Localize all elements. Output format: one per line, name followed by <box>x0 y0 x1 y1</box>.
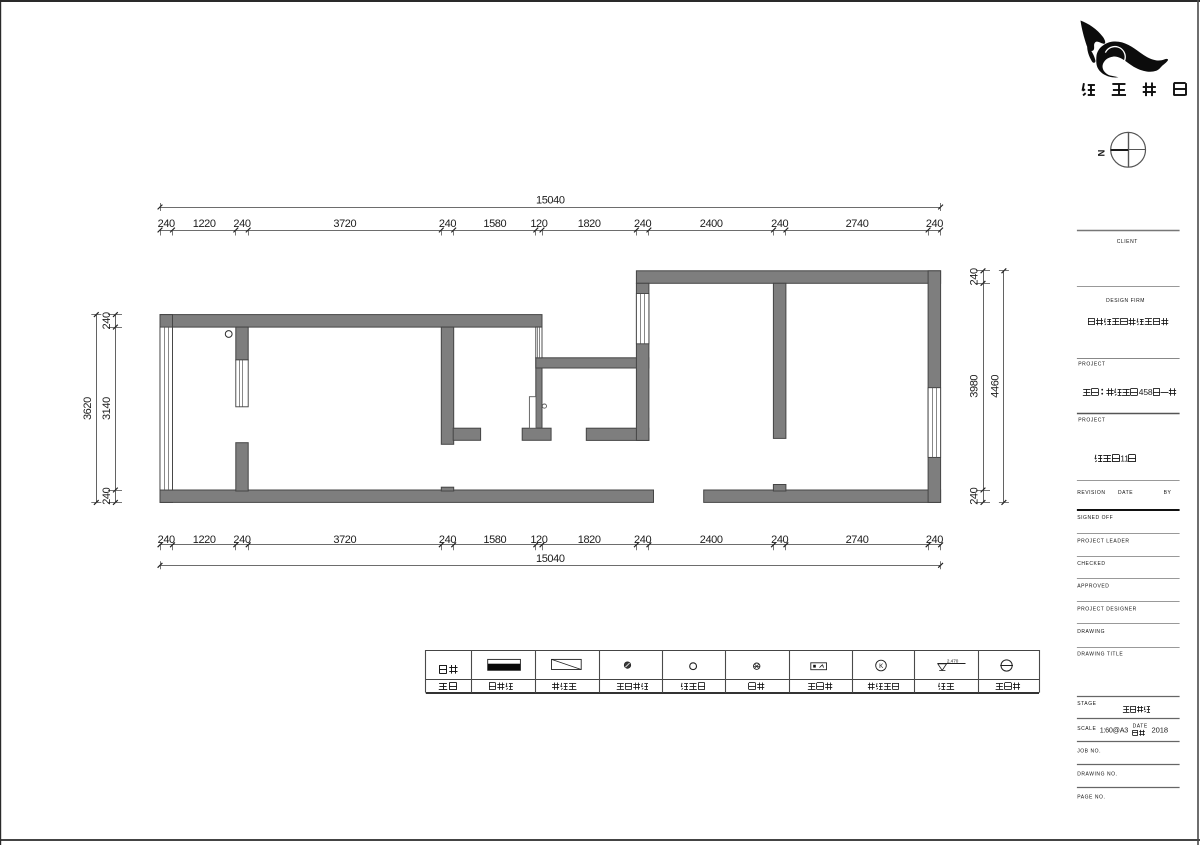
svg-text:PAGE NO.: PAGE NO. <box>1077 795 1105 801</box>
svg-text:240: 240 <box>634 534 651 546</box>
svg-text:15040: 15040 <box>536 195 565 207</box>
svg-text:240: 240 <box>158 534 175 546</box>
svg-text:11: 11 <box>1120 454 1129 464</box>
svg-text:240: 240 <box>158 218 175 230</box>
svg-text:2018: 2018 <box>1152 725 1169 734</box>
svg-text:240: 240 <box>101 487 113 504</box>
svg-text:240: 240 <box>969 487 981 504</box>
svg-text:DATE: DATE <box>1133 724 1148 730</box>
svg-text:240: 240 <box>634 218 651 230</box>
svg-text:DATE: DATE <box>1118 490 1133 496</box>
svg-text:1580: 1580 <box>483 218 506 230</box>
svg-text:4460: 4460 <box>990 375 1002 398</box>
svg-text:3140: 3140 <box>101 397 113 420</box>
svg-text:458: 458 <box>1139 387 1153 397</box>
svg-text:STAGE: STAGE <box>1077 701 1096 707</box>
svg-text:15040: 15040 <box>536 553 565 565</box>
svg-text:REVISION: REVISION <box>1077 490 1105 496</box>
svg-text:2400: 2400 <box>700 534 723 546</box>
svg-text:DESIGN FIRM: DESIGN FIRM <box>1106 298 1145 304</box>
svg-text:DRAWING: DRAWING <box>1077 629 1105 635</box>
svg-text:PROJECT: PROJECT <box>1078 418 1105 424</box>
svg-text:1580: 1580 <box>483 534 506 546</box>
svg-text:240: 240 <box>771 534 788 546</box>
svg-text:240: 240 <box>969 268 981 285</box>
svg-text:240: 240 <box>439 534 456 546</box>
svg-text:240: 240 <box>101 312 113 329</box>
svg-text:240: 240 <box>926 534 943 546</box>
svg-text:3620: 3620 <box>82 397 94 420</box>
svg-text:240: 240 <box>926 218 943 230</box>
svg-text:JOB NO.: JOB NO. <box>1077 749 1101 755</box>
svg-text:APPROVED: APPROVED <box>1077 584 1109 590</box>
svg-text:N: N <box>1097 149 1108 156</box>
svg-text:PROJECT DESIGNER: PROJECT DESIGNER <box>1077 606 1137 612</box>
svg-text:240: 240 <box>439 218 456 230</box>
svg-text:SCALE: SCALE <box>1077 726 1096 732</box>
svg-text:CLIENT: CLIENT <box>1117 239 1138 245</box>
svg-text:1820: 1820 <box>578 534 601 546</box>
svg-text:SIGNED OFF: SIGNED OFF <box>1077 515 1113 521</box>
svg-text:2400: 2400 <box>700 218 723 230</box>
svg-text:3720: 3720 <box>333 218 356 230</box>
svg-text:DRAWING TITLE: DRAWING TITLE <box>1077 651 1123 657</box>
svg-text:240: 240 <box>233 218 250 230</box>
svg-text:240: 240 <box>233 534 250 546</box>
svg-text:3720: 3720 <box>333 534 356 546</box>
svg-text:1220: 1220 <box>193 218 216 230</box>
svg-text:3980: 3980 <box>969 375 981 398</box>
svg-text:2.470: 2.470 <box>947 658 959 663</box>
svg-text:1220: 1220 <box>193 534 216 546</box>
svg-text:PROJECT LEADER: PROJECT LEADER <box>1077 539 1129 545</box>
svg-text:PROJECT: PROJECT <box>1078 362 1105 368</box>
svg-text:2740: 2740 <box>846 534 869 546</box>
svg-text:1820: 1820 <box>578 218 601 230</box>
svg-text:240: 240 <box>771 218 788 230</box>
svg-text:CHECKED: CHECKED <box>1077 561 1105 567</box>
svg-text:1:60@A3: 1:60@A3 <box>1100 726 1129 735</box>
svg-text:DRAWING NO.: DRAWING NO. <box>1077 772 1117 778</box>
svg-text:120: 120 <box>530 534 547 546</box>
svg-text:2740: 2740 <box>846 218 869 230</box>
svg-text:BY: BY <box>1164 490 1172 496</box>
svg-text:120: 120 <box>530 218 547 230</box>
